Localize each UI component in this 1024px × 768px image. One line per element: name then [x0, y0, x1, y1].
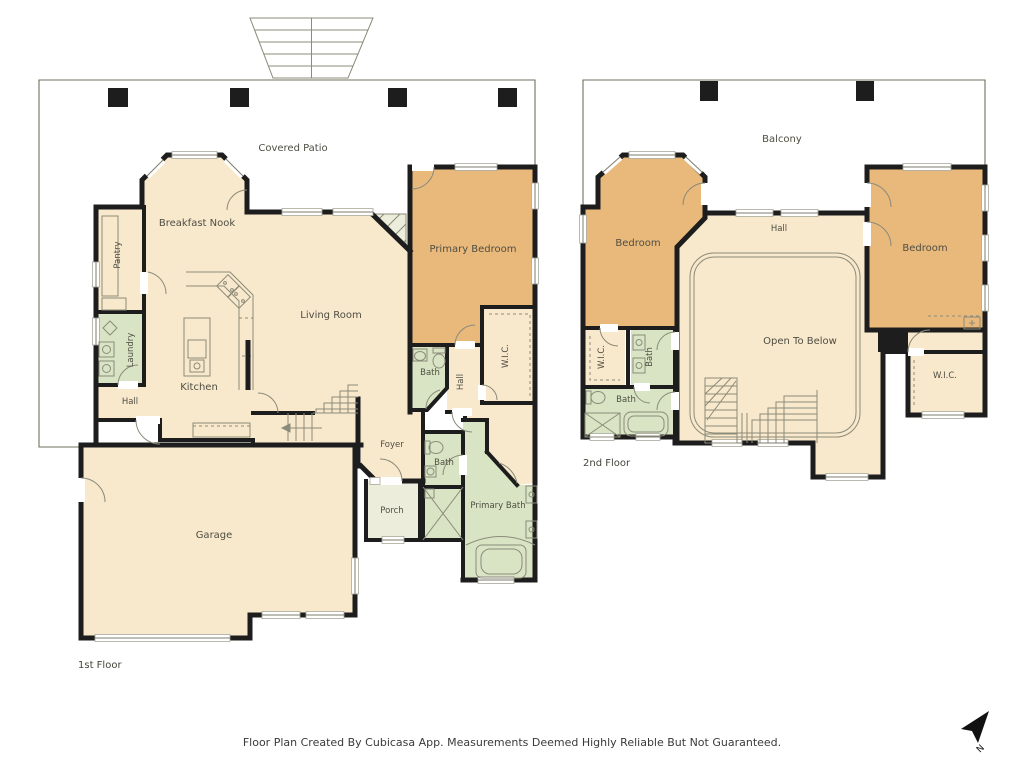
room-label-breakfast-nook: Breakfast Nook — [159, 218, 235, 229]
room-living-kitchen-nook — [142, 155, 410, 445]
second-floor-plan: Balcony Bedroom Hall Bedroom Open To Bel… — [580, 80, 989, 481]
room-label-bedroom-left: Bedroom — [615, 238, 660, 249]
north-compass-icon: N — [961, 711, 989, 755]
floor-plan-svg: Covered Patio Breakfast Nook Pantry Laun… — [0, 0, 1024, 768]
room-wic-right — [908, 352, 985, 415]
room-label-bath-upper: Bath — [420, 368, 440, 378]
room-label-bedroom-right: Bedroom — [902, 243, 947, 254]
room-label-hall-first: Hall — [122, 397, 138, 407]
room-label-pantry: Pantry — [113, 241, 123, 268]
first-floor-plan: Covered Patio Breakfast Nook Pantry Laun… — [39, 18, 539, 671]
patio-pillars — [108, 88, 517, 107]
room-label-kitchen: Kitchen — [180, 382, 218, 393]
second-floor-title: 2nd Floor — [583, 458, 631, 469]
room-laundry — [96, 312, 144, 385]
exterior-entry-steps — [250, 18, 373, 78]
floor-plan-page: Covered Patio Breakfast Nook Pantry Laun… — [0, 0, 1024, 768]
room-label-wic-first: W.I.C. — [501, 344, 511, 368]
room-label-primary-bedroom: Primary Bedroom — [429, 244, 516, 255]
room-garage — [81, 445, 355, 638]
north-label: N — [975, 743, 987, 755]
room-label-hall-second: Hall — [771, 224, 787, 234]
first-floor-title: 1st Floor — [78, 660, 122, 671]
room-label-laundry: Laundry — [126, 333, 136, 368]
room-label-covered-patio: Covered Patio — [258, 143, 327, 154]
room-label-porch: Porch — [380, 506, 403, 516]
footer-disclaimer: Floor Plan Created By Cubicasa App. Meas… — [243, 736, 781, 749]
room-label-open-to-below: Open To Below — [763, 336, 837, 347]
room-label-wic-right: W.I.C. — [933, 371, 957, 381]
room-label-bath-vertical: Bath — [645, 347, 655, 367]
room-label-primary-bath: Primary Bath — [470, 501, 525, 511]
room-label-bath-lower-second: Bath — [616, 395, 636, 405]
room-label-hall-vertical: Hall — [456, 374, 466, 390]
room-label-bath-lower: Bath — [434, 458, 454, 468]
room-label-balcony: Balcony — [762, 134, 802, 145]
chimney-block — [878, 332, 908, 352]
balcony-pillars — [700, 81, 874, 101]
room-label-wic-left: W.I.C. — [597, 345, 607, 369]
room-label-foyer: Foyer — [380, 440, 404, 450]
room-label-living-room: Living Room — [300, 310, 361, 321]
room-label-garage: Garage — [196, 530, 233, 541]
